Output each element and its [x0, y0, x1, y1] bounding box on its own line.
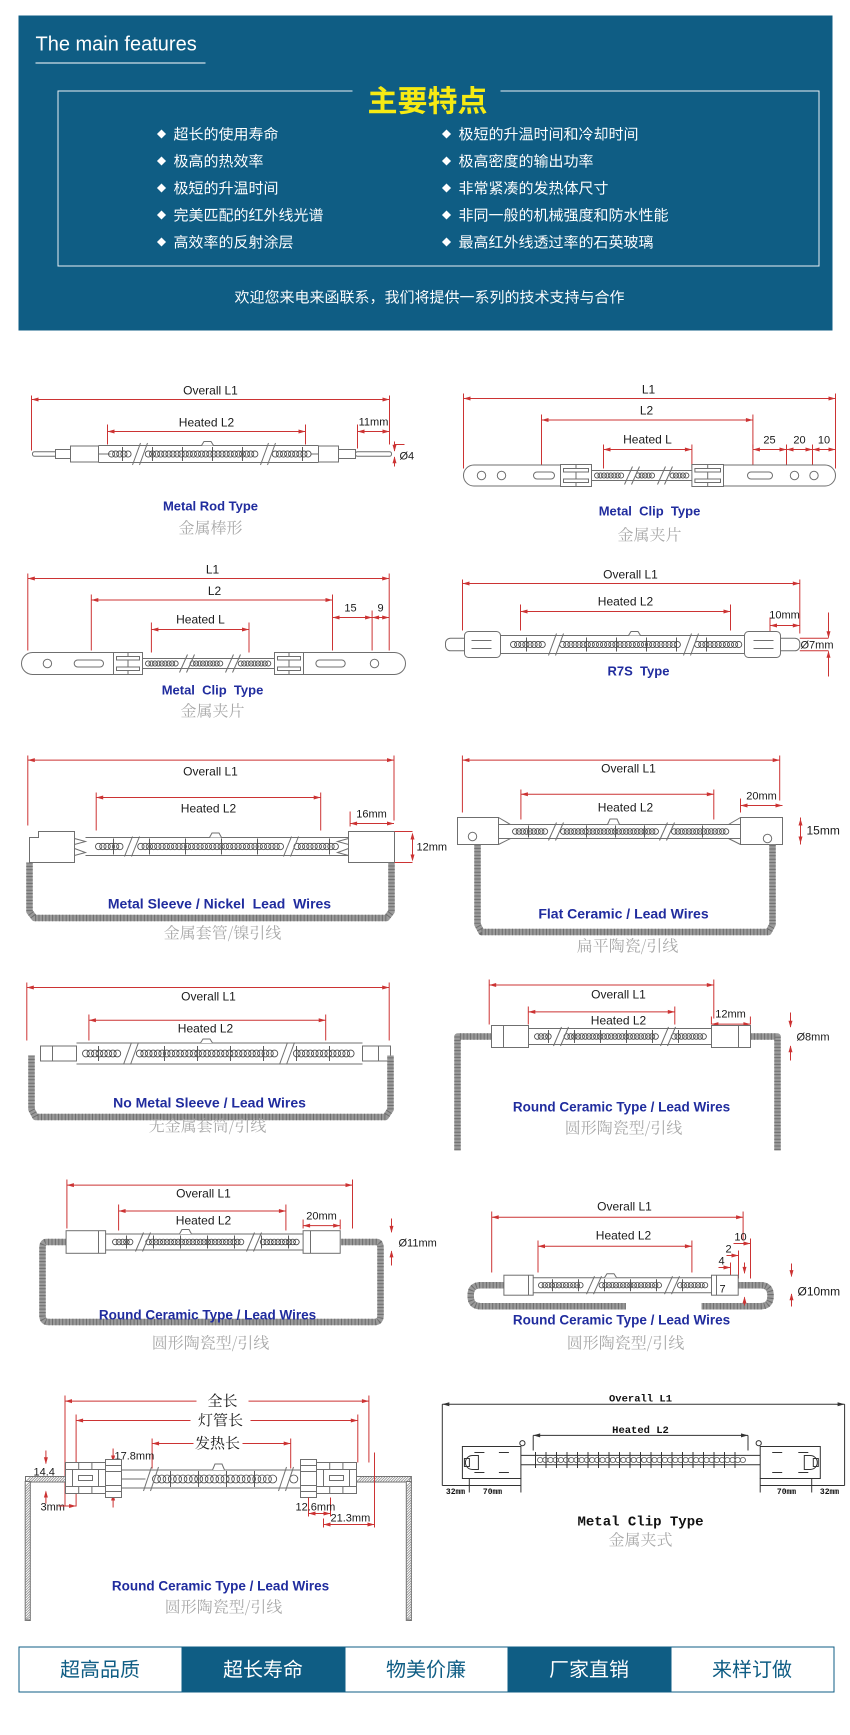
svg-text:Round Ceramic Type / Lead Wire: Round Ceramic Type / Lead Wires	[513, 1100, 730, 1115]
svg-text:Heated L2: Heated L2	[176, 1214, 232, 1228]
svg-text:L2: L2	[640, 404, 654, 418]
svg-text:3mm: 3mm	[41, 1502, 65, 1514]
svg-text:Heated L: Heated L	[176, 613, 225, 627]
svg-text:Metal Clip Type: Metal Clip Type	[162, 683, 264, 698]
svg-text:Overall L1: Overall L1	[603, 568, 658, 582]
svg-text:Overall L1: Overall L1	[181, 990, 236, 1004]
svg-text:12.6mm: 12.6mm	[296, 1502, 336, 1514]
svg-text:70mm: 70mm	[483, 1488, 502, 1497]
svg-text:Overall L1: Overall L1	[597, 1200, 652, 1214]
svg-text:Metal Clip Type: Metal Clip Type	[599, 504, 701, 519]
svg-text:Heated L2: Heated L2	[181, 802, 237, 816]
svg-text:Round Ceramic Type / Lead Wire: Round Ceramic Type / Lead Wires	[99, 1308, 316, 1323]
svg-text:R7S Type: R7S Type	[608, 664, 670, 679]
svg-text:15mm: 15mm	[807, 824, 840, 838]
svg-text:70mm: 70mm	[777, 1488, 796, 1497]
svg-text:Metal Sleeve / Nickel Lead W: Metal Sleeve / Nickel Lead Wires	[108, 896, 331, 912]
svg-text:20mm: 20mm	[746, 791, 777, 803]
svg-text:Heated L2: Heated L2	[179, 416, 235, 430]
svg-text:32mm: 32mm	[446, 1488, 465, 1497]
svg-text:Overall L1: Overall L1	[183, 765, 238, 779]
svg-text:L1: L1	[206, 563, 220, 577]
svg-text:9: 9	[377, 603, 383, 615]
svg-text:Heated L2: Heated L2	[591, 1014, 647, 1028]
svg-text:10mm: 10mm	[769, 610, 800, 622]
svg-text:12mm: 12mm	[417, 842, 448, 854]
svg-text:10: 10	[818, 435, 830, 447]
svg-text:Heated L2: Heated L2	[178, 1022, 234, 1036]
svg-text:20: 20	[793, 435, 805, 447]
svg-text:Metal Clip Type: Metal Clip Type	[577, 1515, 703, 1531]
svg-text:25: 25	[763, 435, 775, 447]
svg-text:16mm: 16mm	[356, 809, 387, 821]
svg-text:Ø4: Ø4	[400, 451, 415, 463]
svg-text:L1: L1	[642, 383, 656, 397]
svg-text:Round Ceramic Type / Lead Wire: Round Ceramic Type / Lead Wires	[112, 1579, 329, 1594]
svg-text:Overall L1: Overall L1	[183, 384, 238, 398]
svg-text:Overall L1: Overall L1	[591, 988, 646, 1002]
svg-text:Ø11mm: Ø11mm	[399, 1238, 437, 1250]
svg-text:12mm: 12mm	[715, 1009, 746, 1021]
svg-text:The main features: The main features	[36, 34, 197, 56]
svg-text:Heated L: Heated L	[623, 433, 672, 447]
svg-text:Ø8mm: Ø8mm	[797, 1032, 830, 1044]
svg-text:Ø10mm: Ø10mm	[798, 1285, 841, 1299]
svg-text:No Metal Sleeve / Lead Wires: No Metal Sleeve / Lead Wires	[113, 1095, 306, 1111]
svg-text:15: 15	[344, 603, 356, 615]
svg-text:Round Ceramic Type / Lead Wire: Round Ceramic Type / Lead Wires	[513, 1313, 730, 1328]
svg-text:10: 10	[734, 1232, 746, 1244]
svg-text:7: 7	[719, 1284, 725, 1296]
svg-text:4: 4	[718, 1256, 724, 1268]
svg-text:21.3mm: 21.3mm	[331, 1513, 371, 1525]
svg-text:Ø7mm: Ø7mm	[801, 640, 834, 652]
svg-text:20mm: 20mm	[306, 1211, 337, 1223]
svg-text:Flat Ceramic / Lead Wires: Flat Ceramic / Lead Wires	[538, 906, 708, 922]
svg-text:Metal Rod Type: Metal Rod Type	[163, 499, 258, 514]
svg-text:Heated L2: Heated L2	[612, 1425, 669, 1437]
svg-text:Overall L1: Overall L1	[609, 1394, 672, 1406]
svg-text:Heated L2: Heated L2	[598, 595, 654, 609]
svg-text:32mm: 32mm	[820, 1488, 839, 1497]
svg-text:Overall L1: Overall L1	[176, 1187, 231, 1201]
svg-text:L2: L2	[208, 584, 222, 598]
svg-text:2: 2	[725, 1244, 731, 1256]
svg-text:Overall L1: Overall L1	[601, 762, 656, 776]
svg-text:Heated L2: Heated L2	[598, 801, 654, 815]
svg-text:11mm: 11mm	[359, 417, 389, 429]
svg-text:Heated L2: Heated L2	[596, 1229, 652, 1243]
